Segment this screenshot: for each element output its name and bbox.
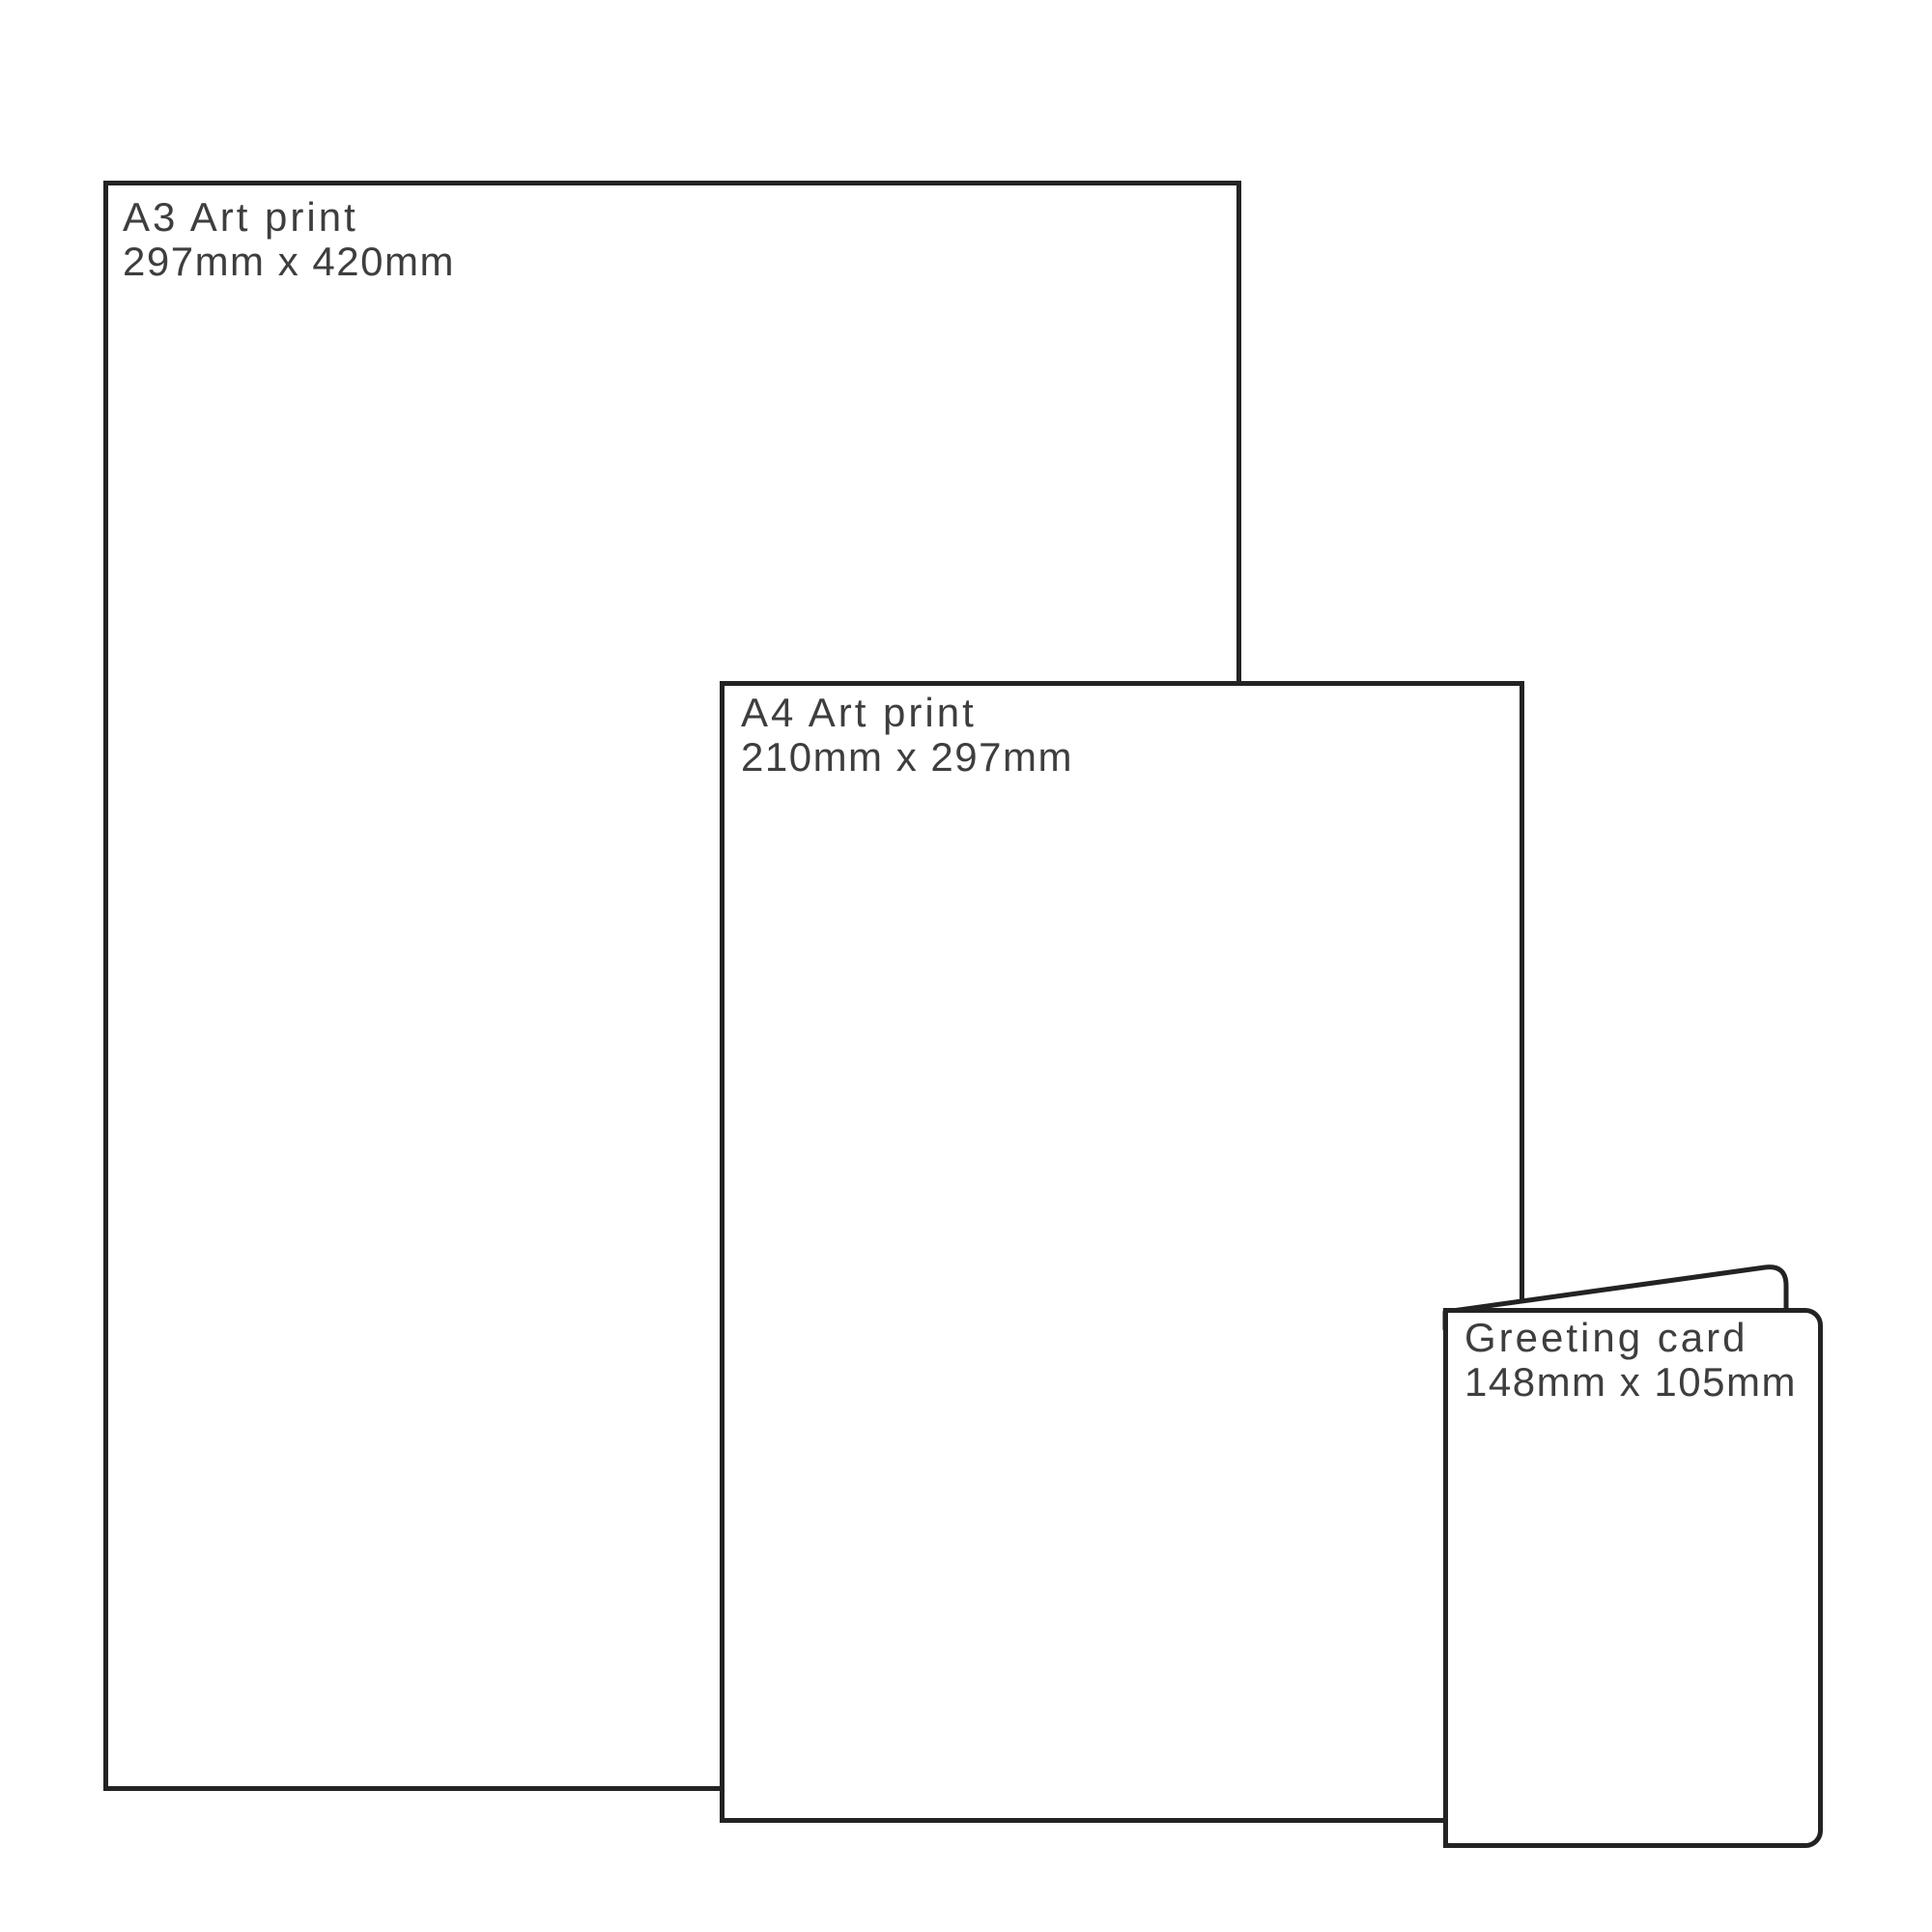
greeting-card-outline: Greeting card 148mm x 105mm (1443, 1308, 1823, 1848)
size-comparison-diagram: A3 Art print 297mm x 420mm A4 Art print … (0, 0, 1932, 1932)
greeting-card-label: Greeting card 148mm x 105mm (1464, 1316, 1797, 1405)
greeting-card-title: Greeting card (1464, 1316, 1797, 1360)
greeting-card-dimensions: 148mm x 105mm (1464, 1360, 1797, 1405)
